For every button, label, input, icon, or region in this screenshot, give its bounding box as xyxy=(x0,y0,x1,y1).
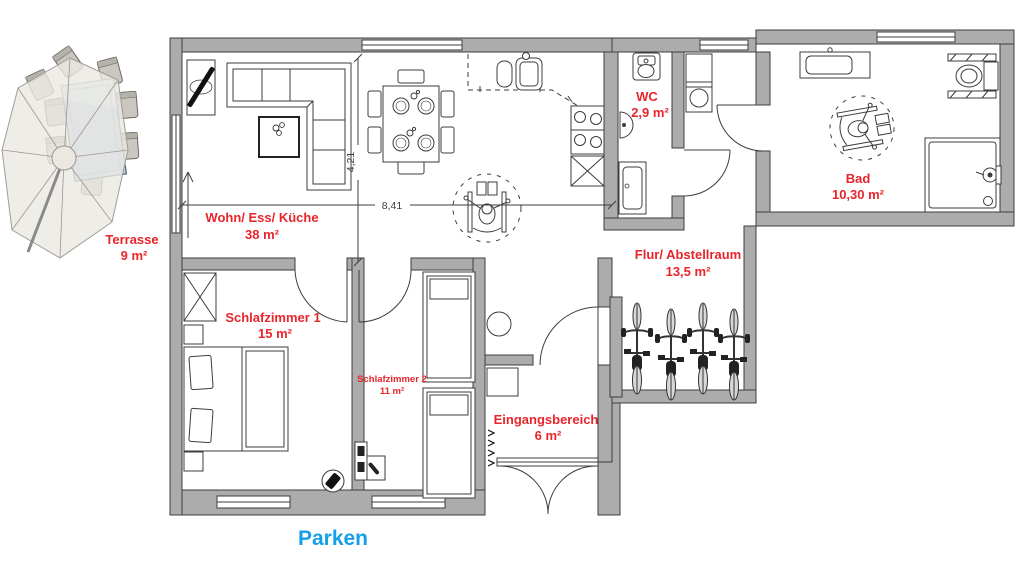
label-wc: WC 2,9 m² xyxy=(631,89,669,120)
washbasin-bad xyxy=(800,48,870,78)
label-bad: Bad 10,30 m² xyxy=(832,171,885,202)
wall-wc-niche-b xyxy=(672,196,684,218)
window-top-living xyxy=(362,40,462,50)
coat-hooks xyxy=(488,430,494,466)
nightstand-1 xyxy=(184,325,203,344)
wohn-name: Wohn/ Ess/ Küche xyxy=(205,210,318,225)
sz2-area: 11 m² xyxy=(380,386,404,397)
floor-plan-canvas: Terrasse 9 m² xyxy=(0,0,1024,577)
wardrobe xyxy=(184,273,216,321)
wall-bottom-bad xyxy=(756,212,1014,226)
bedroom-2: Schlafzimmer 2 11 m² xyxy=(355,272,475,498)
flur-name: Flur/ Abstellraum xyxy=(635,247,741,262)
label-schlafzimmer-2: Schlafzimmer 2 11 m² xyxy=(357,374,427,397)
parasol-icon xyxy=(2,58,128,258)
wall-below-wc xyxy=(604,218,684,230)
wc-name: WC xyxy=(636,89,658,104)
sz1-name: Schlafzimmer 1 xyxy=(225,310,320,325)
window-bottom-1 xyxy=(217,496,290,508)
wall-left xyxy=(170,38,182,515)
door-eingang-top xyxy=(540,307,598,365)
double-bed xyxy=(184,347,288,451)
wall-eingang-top xyxy=(485,355,533,365)
wall-bike-west xyxy=(610,297,622,397)
kitchen-counter xyxy=(468,53,604,187)
label-terrasse: Terrasse 9 m² xyxy=(105,232,158,263)
terrasse-name: Terrasse xyxy=(105,232,158,247)
stove xyxy=(571,106,604,154)
wc-area: 2,9 m² xyxy=(631,105,669,120)
wheelchair-symbol-living xyxy=(453,174,521,242)
entrance-area: Eingangsbereich 6 m² xyxy=(487,312,598,466)
wc-room: WC 2,9 m² xyxy=(619,53,669,214)
wall-niche-bad-a xyxy=(756,52,770,105)
bad-area: 10,30 m² xyxy=(832,187,885,202)
vanity-wc xyxy=(619,162,646,214)
wall-sz1-top-a xyxy=(182,258,295,270)
terrasse-area: 9 m² xyxy=(121,248,148,263)
terrace: Terrasse 9 m² xyxy=(2,46,159,263)
label-wohn-ess-kueche: Wohn/ Ess/ Küche 38 m² xyxy=(205,210,318,242)
living-room: Wohn/ Ess/ Küche 38 m² xyxy=(187,53,604,243)
wall-wc-niche-a xyxy=(672,52,684,148)
sz2-name: Schlafzimmer 2 xyxy=(357,374,427,385)
parken-label: Parken xyxy=(298,527,368,550)
toilet-bad xyxy=(948,54,998,98)
wall-sz1-top-b xyxy=(347,258,352,270)
bedroom-1: Schlafzimmer 1 15 m² xyxy=(184,273,344,492)
window-top-wc xyxy=(700,40,748,50)
dining-table-set xyxy=(368,70,454,174)
wohn-area: 38 m² xyxy=(245,227,280,242)
coffee-table xyxy=(259,117,299,157)
wall-right-bad xyxy=(1000,44,1014,226)
round-table xyxy=(487,312,511,336)
bad-name: Bad xyxy=(846,171,871,186)
door-wc xyxy=(684,150,730,196)
single-bed-1 xyxy=(423,272,475,382)
utility-niche xyxy=(686,54,712,112)
kitchen-sink xyxy=(497,53,542,91)
grab-bar-bottom xyxy=(948,91,996,98)
wall-flur-east xyxy=(744,226,756,403)
window-left xyxy=(172,115,180,233)
shower xyxy=(925,138,1001,212)
desk-shelf xyxy=(355,442,385,480)
bathroom: Bad 10,30 m² xyxy=(800,48,1001,212)
label-eingangsbereich: Eingangsbereich 6 m² xyxy=(494,412,599,443)
single-bed-2 xyxy=(423,388,475,498)
dim-vertical-value: 4,21 xyxy=(345,152,357,173)
toilet-wc xyxy=(633,53,660,80)
wheelchair-symbol-bad xyxy=(830,96,894,160)
wall-niche-bad-b xyxy=(756,151,770,212)
label-flur: Flur/ Abstellraum 13,5 m² xyxy=(635,247,741,279)
bicycles xyxy=(621,303,750,400)
grab-bar-top xyxy=(948,54,996,61)
eingang-name: Eingangsbereich xyxy=(494,412,599,427)
wall-sz2-top xyxy=(411,258,473,270)
sz1-area: 15 m² xyxy=(258,326,293,341)
door-bad xyxy=(717,105,763,151)
entry-cabinet xyxy=(487,368,518,396)
eingang-area: 6 m² xyxy=(535,428,562,443)
flur-area: 13,5 m² xyxy=(666,264,711,279)
wall-kitchen-wc xyxy=(604,52,618,218)
entry-double-door xyxy=(497,458,598,514)
hallway: Flur/ Abstellraum 13,5 m² xyxy=(621,247,750,400)
window-top-bad xyxy=(877,32,955,42)
nightstand-2 xyxy=(184,452,203,471)
door-schlafzimmer-2 xyxy=(359,270,411,322)
tv-unit xyxy=(187,60,216,115)
refrigerator xyxy=(571,156,604,186)
washing-machine xyxy=(686,82,712,112)
dim-horizontal-value: 8,41 xyxy=(382,200,403,212)
label-schlafzimmer-1: Schlafzimmer 1 15 m² xyxy=(225,310,320,341)
stool xyxy=(322,470,344,492)
